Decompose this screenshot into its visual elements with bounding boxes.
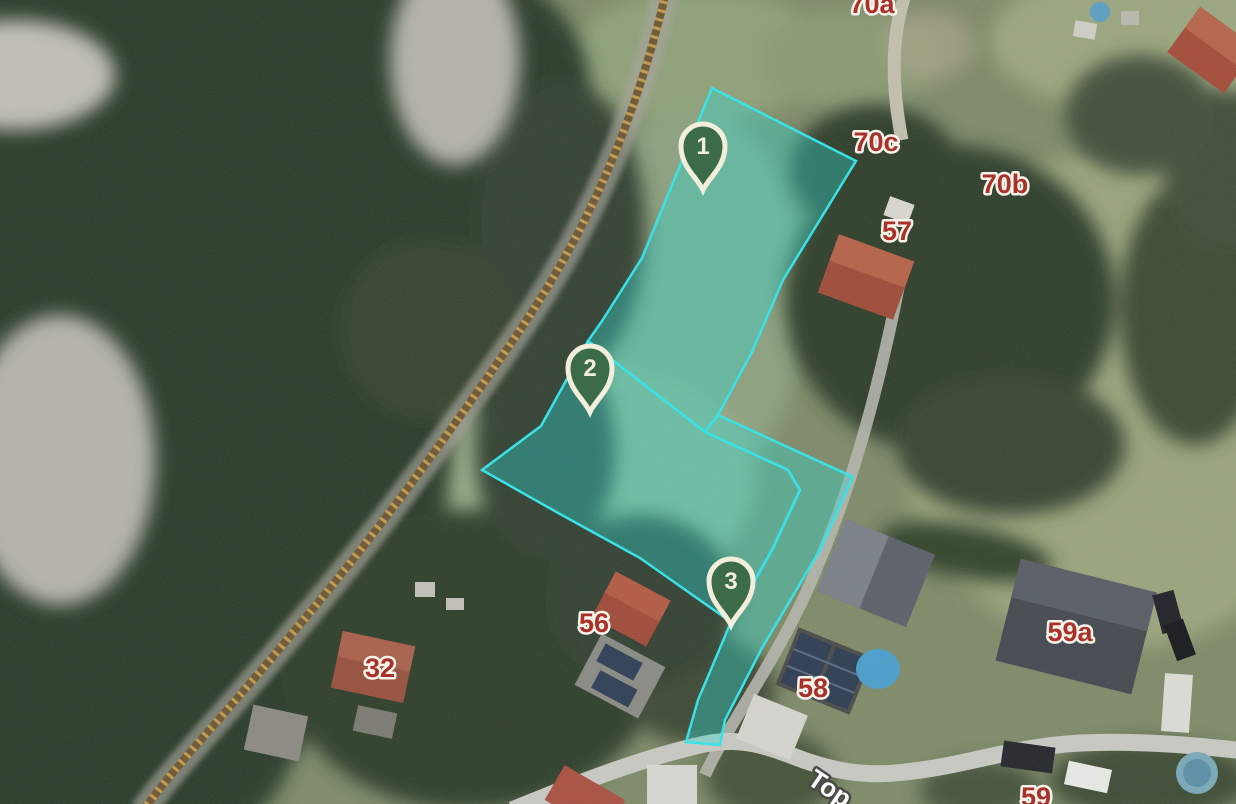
house-number-label: 56	[579, 608, 609, 638]
house-number-label: 70b	[982, 169, 1029, 199]
house-number-label: 57	[882, 216, 912, 246]
marker-number: 3	[724, 568, 737, 595]
map-viewport: 1 2 3 70a 70c 70b 57 56 32 58 59a 59 Top	[0, 0, 1236, 804]
house-number-label: 59a	[1047, 617, 1093, 647]
aerial-map: 1 2 3 70a 70c 70b 57 56 32 58 59a 59 Top	[0, 0, 1236, 804]
house-number-label: 70c	[853, 127, 898, 157]
house-number-label: 58	[798, 673, 828, 703]
marker-number: 1	[696, 133, 709, 160]
house-number-label: 59	[1021, 782, 1051, 804]
house-number-label: 70a	[849, 0, 895, 19]
house-number-label: 32	[365, 653, 395, 683]
marker-number: 2	[583, 355, 596, 382]
